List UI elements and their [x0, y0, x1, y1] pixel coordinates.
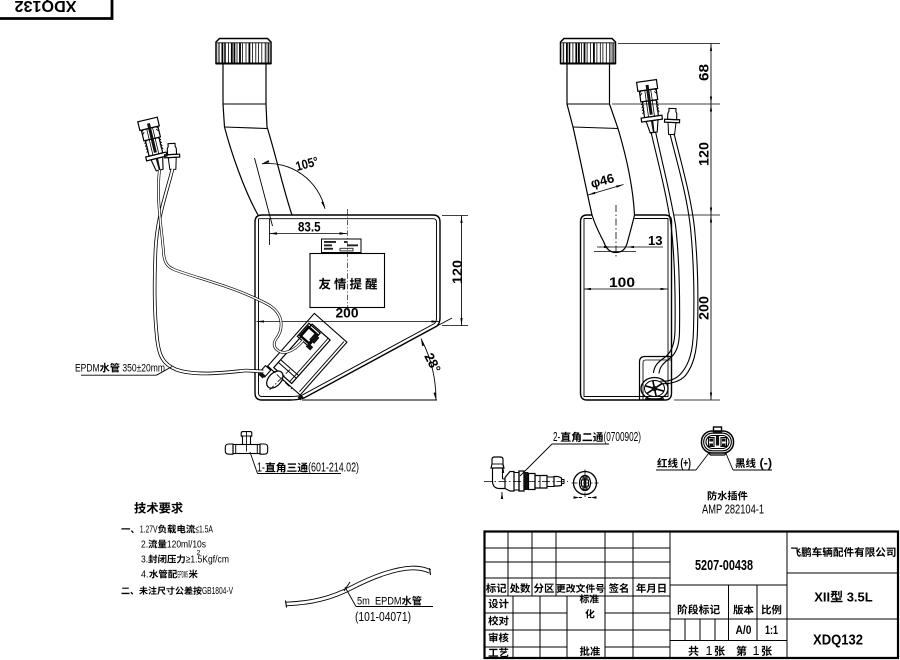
svg-text:1: 1 — [753, 644, 760, 658]
svg-text:2: 2 — [197, 550, 201, 557]
svg-text:2.: 2. — [141, 540, 148, 551]
svg-text:XDQ132: XDQ132 — [813, 632, 863, 649]
svg-text:(601-214.02): (601-214.02) — [308, 461, 359, 475]
svg-text:13: 13 — [648, 233, 663, 248]
svg-text:3.5L: 3.5L — [843, 590, 873, 605]
svg-text:1.27V: 1.27V — [140, 525, 158, 536]
svg-text:XII: XII — [814, 590, 830, 605]
svg-text:83.5: 83.5 — [298, 219, 321, 235]
svg-text:(-): (-) — [756, 458, 772, 470]
svg-text:120: 120 — [449, 260, 465, 284]
svg-text:≥1.5Kgf/cm: ≥1.5Kgf/cm — [186, 555, 229, 566]
svg-text:2-: 2- — [553, 430, 560, 444]
svg-text:68: 68 — [696, 64, 712, 81]
svg-text:EPDM5: EPDM5 — [178, 570, 189, 581]
svg-text:A/0: A/0 — [736, 625, 752, 637]
svg-text:200: 200 — [696, 296, 712, 320]
svg-text:100: 100 — [609, 274, 635, 290]
svg-text:5207-00438: 5207-00438 — [695, 557, 753, 574]
svg-text:(0700902): (0700902) — [604, 430, 642, 444]
svg-text:(+): (+) — [678, 458, 691, 470]
svg-text:EPDM: EPDM — [75, 363, 100, 375]
svg-text:4.: 4. — [141, 570, 149, 581]
svg-text:1:1: 1:1 — [765, 625, 778, 637]
svg-text:AMP 282104-1: AMP 282104-1 — [702, 503, 764, 517]
svg-text:1-: 1- — [257, 461, 265, 475]
svg-text:GB1804-V: GB1804-V — [202, 586, 233, 597]
svg-text:350±20mm: 350±20mm — [120, 363, 165, 375]
svg-text:3.: 3. — [141, 555, 148, 566]
svg-text:120ml/10s: 120ml/10s — [167, 540, 206, 551]
svg-text:XDQ132: XDQ132 — [15, 0, 77, 14]
svg-text:(101-04071): (101-04071) — [355, 610, 411, 624]
svg-text:200: 200 — [336, 305, 359, 321]
svg-text:120: 120 — [696, 142, 712, 166]
svg-text:1: 1 — [706, 644, 713, 658]
svg-text:5m EPDM: 5m EPDM — [357, 596, 402, 608]
svg-text:≤1.5A: ≤1.5A — [195, 525, 213, 536]
